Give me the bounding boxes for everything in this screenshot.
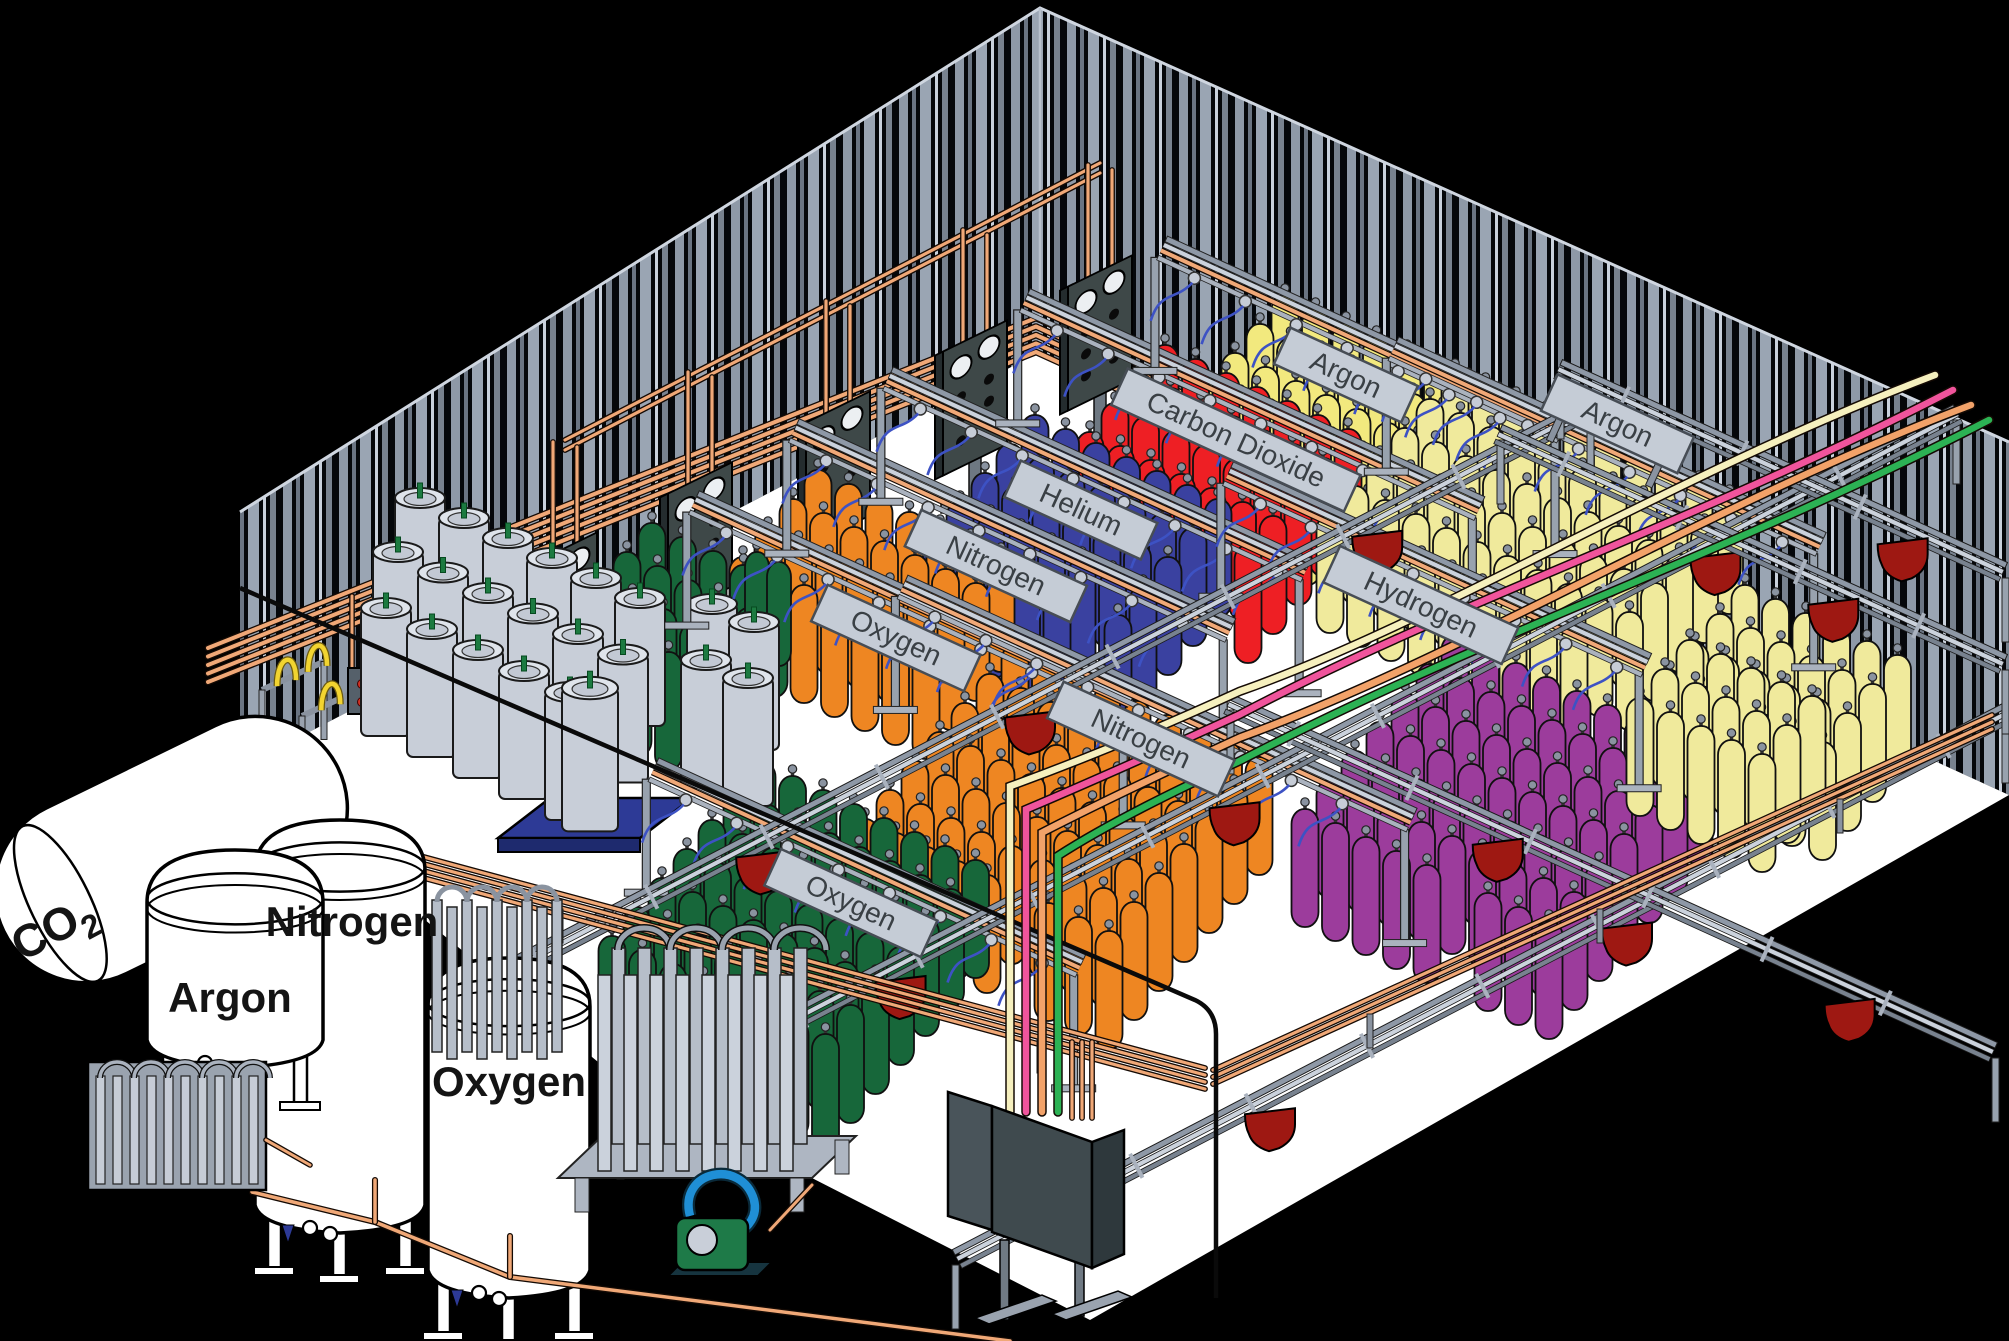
cylinder-valve-icon	[1528, 516, 1536, 524]
cylinder-valve-icon	[1105, 920, 1113, 928]
vaporizer-fin	[768, 948, 781, 1144]
cylinder-valve-icon	[916, 793, 924, 801]
pallet-rack	[88, 1062, 270, 1190]
rack-cylinder	[130, 1076, 139, 1184]
cylinder-valve-icon	[1777, 631, 1785, 639]
rack-cylinder	[181, 1076, 190, 1184]
cylinder-valve-icon	[1027, 763, 1035, 771]
cylinder-valve-icon	[1381, 754, 1389, 762]
cylinder-valve-icon	[1191, 348, 1199, 356]
cylinder-valve-icon	[1456, 402, 1464, 410]
rack-cylinder	[232, 1076, 241, 1184]
cylinder-valve-icon	[653, 555, 661, 563]
cylinder-valve-icon	[1625, 601, 1633, 609]
conveyor-post	[952, 1265, 959, 1329]
dewar-valve-icon	[396, 537, 401, 552]
nitrogen-tank-label: Nitrogen	[266, 898, 439, 945]
dewar-valve-icon	[418, 483, 423, 498]
cylinder-valve-icon	[1222, 362, 1230, 370]
cylinder-valve-icon	[819, 779, 827, 787]
vaporizer-fin	[477, 907, 487, 1059]
gas-plant-illustration: Oxygen Nitrogen Helium Carbon Dioxide Ar…	[0, 0, 2009, 1341]
cylinder-valve-icon	[1498, 767, 1506, 775]
rail-foot	[1383, 940, 1427, 947]
vaporizer-fin	[598, 975, 611, 1171]
cylinder-valve-icon	[1301, 798, 1309, 806]
vaporizer-fin	[612, 948, 625, 1144]
dewar-valve-icon	[746, 663, 751, 678]
cylinder-valve-icon	[947, 807, 955, 815]
cylinder-valve-icon	[1417, 811, 1425, 819]
pump-motor-icon	[687, 1225, 717, 1255]
dewar-valve-icon	[550, 543, 555, 558]
cylinder-valve-icon	[1584, 766, 1592, 774]
cylinder-valve-icon	[1661, 658, 1669, 666]
cylinder-valve-icon	[1344, 418, 1352, 426]
cylinder-valve-icon	[1523, 473, 1531, 481]
cylinder-valve-icon	[1573, 680, 1581, 688]
rack-cylinder	[113, 1076, 122, 1184]
pipe-post	[1367, 1014, 1373, 1048]
vaporizer-fin	[702, 975, 715, 1171]
dewar-valve-icon	[430, 614, 435, 629]
cylinder-valve-icon	[1088, 791, 1096, 799]
cylinder-valve-icon	[1061, 418, 1069, 426]
cylinder-valve-icon	[1843, 702, 1851, 710]
cylinder-valve-icon	[1231, 342, 1239, 350]
cylinder-valve-icon	[1423, 854, 1431, 862]
cylinder-valve-icon	[855, 836, 863, 844]
cylinder-valve-icon	[1542, 666, 1550, 674]
liquid-dewar	[723, 663, 773, 806]
vaporizer-fin	[728, 975, 741, 1171]
cylinder-valve-icon	[1570, 881, 1578, 889]
cylinder-valve-icon	[1381, 489, 1389, 497]
cylinder-valve-icon	[714, 583, 722, 591]
vaporizer-base-leg	[575, 1178, 589, 1212]
dewar-valve-icon	[506, 523, 511, 538]
cylinder-valve-icon	[971, 849, 979, 857]
cylinder-valve-icon	[1492, 724, 1500, 732]
isometric-scene: Oxygen Nitrogen Helium Carbon Dioxide Ar…	[0, 0, 2009, 1341]
cylinder-valve-icon	[1161, 334, 1169, 342]
gas-cylinder	[1322, 812, 1349, 941]
cylinder-valve-icon	[1147, 449, 1155, 457]
vaporizer-fin	[754, 975, 767, 1171]
tank-foot	[280, 1102, 320, 1110]
cylinder-valve-icon	[1406, 725, 1414, 733]
cylinder-valve-icon	[1462, 710, 1470, 718]
dewar-valve-icon	[576, 619, 581, 634]
rail-post	[1295, 580, 1303, 694]
cylinder-valve-icon	[1503, 810, 1511, 818]
conveyor-post	[2002, 578, 2009, 642]
tank-valve-icon	[323, 1227, 337, 1241]
liquid-dewar	[499, 656, 549, 799]
gas-cylinder	[1292, 798, 1319, 927]
cylinder-valve-icon	[1589, 809, 1597, 817]
cylinder-valve-icon	[936, 721, 944, 729]
cylinder-valve-icon	[977, 821, 985, 829]
cylinder-valve-icon	[1116, 435, 1124, 443]
cylinder-valve-icon	[1058, 777, 1066, 785]
cylinder-valve-icon	[1442, 782, 1450, 790]
cylinder-valve-icon	[1808, 685, 1816, 693]
cylinder-valve-icon	[1487, 681, 1495, 689]
cylinder-valve-icon	[719, 895, 727, 903]
cylinder-valve-icon	[663, 910, 671, 918]
dewar-valve-icon	[462, 503, 467, 518]
dewar-valve-icon	[486, 578, 491, 593]
vaporizer-fin	[492, 900, 502, 1052]
cylinder-valve-icon	[1256, 313, 1264, 321]
cylinder-valve-icon	[1467, 753, 1475, 761]
cylinder-valve-icon	[1578, 723, 1586, 731]
rail-foot	[859, 498, 903, 505]
liquid-dewar	[361, 593, 411, 736]
liquid-dewar	[407, 614, 457, 757]
conveyor-post	[2002, 670, 2009, 734]
cylinder-valve-icon	[1716, 643, 1724, 651]
cylinder-valve-icon	[1528, 781, 1536, 789]
cylinder-valve-icon	[1553, 752, 1561, 760]
cylinder-valve-icon	[1261, 356, 1269, 364]
cylinder-valve-icon	[1442, 517, 1450, 525]
cylinder-valve-icon	[1539, 867, 1547, 875]
cylinder-valve-icon	[1514, 896, 1522, 904]
conveyor-post	[1497, 440, 1504, 504]
cylinder-valve-icon	[880, 530, 888, 538]
cylinder-valve-icon	[683, 838, 691, 846]
cylinder-valve-icon	[1603, 694, 1611, 702]
cylinder-valve-icon	[981, 462, 989, 470]
vaporizer-fin	[780, 975, 793, 1171]
tank-valve-icon	[303, 1221, 317, 1235]
cylinder-valve-icon	[1448, 825, 1456, 833]
cylinder-valve-icon	[1523, 738, 1531, 746]
cylinder-valve-icon	[885, 850, 893, 858]
cylinder-valve-icon	[739, 546, 747, 554]
vaporizer-fin	[537, 907, 547, 1059]
cylinder-valve-icon	[1086, 421, 1094, 429]
cylinder-valve-icon	[946, 878, 954, 886]
gas-cylinder	[1171, 833, 1198, 962]
cylinder-valve-icon	[1559, 795, 1567, 803]
cylinder-valve-icon	[997, 749, 1005, 757]
dewar-valve-icon	[621, 640, 626, 655]
cylinder-valve-icon	[1517, 695, 1525, 703]
corner-panel-side	[1092, 1130, 1124, 1268]
gas-cylinder	[812, 1023, 839, 1152]
rail-foot	[665, 622, 709, 629]
tank-foot	[254, 1267, 294, 1275]
dewar-valve-icon	[594, 563, 599, 578]
cylinder-valve-icon	[1155, 862, 1163, 870]
cylinder-valve-icon	[824, 822, 832, 830]
vaporizer-fin	[522, 900, 532, 1052]
cylinder-valve-icon	[880, 807, 888, 815]
conveyor-post	[1953, 420, 1960, 484]
cylinder-valve-icon	[844, 473, 852, 481]
cylinder-valve-icon	[1426, 388, 1434, 396]
cylinder-valve-icon	[1783, 714, 1791, 722]
rack-cylinder	[249, 1076, 258, 1184]
vaporizer-fin	[664, 948, 677, 1144]
cylinder-valve-icon	[1122, 446, 1130, 454]
gas-cylinder	[1121, 891, 1148, 1020]
cylinder-valve-icon	[788, 765, 796, 773]
cylinder-valve-icon	[1503, 545, 1511, 553]
cylinder-valve-icon	[1437, 739, 1445, 747]
cylinder-valve-icon	[1777, 671, 1785, 679]
cylinder-valve-icon	[1283, 390, 1291, 398]
dewar-valve-icon	[522, 656, 527, 671]
gas-cylinder	[1146, 862, 1173, 991]
cylinder-valve-icon	[819, 502, 827, 510]
cylinder-valve-icon	[1031, 404, 1039, 412]
oxygen-tank-label: Oxygen	[432, 1058, 586, 1105]
cylinder-valve-icon	[623, 541, 631, 549]
cylinder-valve-icon	[821, 1023, 829, 1031]
cylinder-valve-icon	[910, 821, 918, 829]
cylinder-valve-icon	[1208, 477, 1216, 485]
vaporizer-fin	[794, 948, 807, 1144]
rail-foot	[996, 420, 1040, 427]
vaporizer-fin	[676, 975, 689, 1171]
dewar-valve-icon	[752, 607, 757, 622]
tank-body	[147, 850, 323, 1068]
cylinder-valve-icon	[1595, 852, 1603, 860]
cylinder-valve-icon	[941, 835, 949, 843]
cylinder-valve-icon	[1153, 460, 1161, 468]
dewar-valve-icon	[384, 593, 389, 608]
cylinder-valve-icon	[1609, 737, 1617, 745]
cylinder-valve-icon	[916, 864, 924, 872]
cylinder-valve-icon	[1746, 617, 1754, 625]
pipe-post	[1837, 799, 1843, 833]
rail-post	[1401, 830, 1409, 944]
tank-foot	[423, 1332, 463, 1340]
cylinder-valve-icon	[1747, 657, 1755, 665]
cylinder-valve-icon	[1666, 701, 1674, 709]
cylinder-valve-icon	[1252, 376, 1260, 384]
pallet-edge	[498, 838, 640, 852]
conveyor-post	[1992, 1058, 1999, 1122]
dewar-valve-icon	[476, 635, 481, 650]
rail-foot	[1364, 468, 1408, 475]
rail-post	[1635, 675, 1643, 789]
rack-cylinder	[147, 1076, 156, 1184]
tank-foot	[319, 1275, 359, 1283]
dewar-valve-icon	[588, 671, 593, 688]
vaporizer-fin	[742, 948, 755, 1144]
cylinder-valve-icon	[905, 501, 913, 509]
vaporizer-fin	[716, 948, 729, 1144]
cylinder-valve-icon	[1099, 877, 1107, 885]
cylinder-valve-icon	[800, 574, 808, 582]
vaporizer-fin	[447, 907, 457, 1059]
gas-cylinder	[1688, 715, 1715, 844]
cylinder-valve-icon	[1130, 891, 1138, 899]
cylinder-valve-icon	[1180, 833, 1188, 841]
cylinder-valve-icon	[1771, 588, 1779, 596]
vaporizer-fin	[507, 907, 517, 1059]
cylinder-valve-icon	[841, 951, 849, 959]
cylinder-valve-icon	[941, 764, 949, 772]
tank-foot	[385, 1267, 425, 1275]
cylinder-valve-icon	[1727, 729, 1735, 737]
cylinder-valve-icon	[972, 778, 980, 786]
rail-foot	[873, 706, 917, 713]
cylinder-valve-icon	[1177, 463, 1185, 471]
cylinder-valve-icon	[1092, 432, 1100, 440]
cylinder-valve-icon	[1559, 530, 1567, 538]
cylinder-valve-icon	[749, 909, 757, 917]
rail-foot	[1792, 664, 1836, 671]
cylinder-valve-icon	[1473, 796, 1481, 804]
liquid-dewar	[562, 671, 618, 831]
gas-cylinder	[1353, 826, 1380, 955]
cylinder-valve-icon	[1758, 743, 1766, 751]
cylinder-valve-icon	[1686, 629, 1694, 637]
cylinder-valve-icon	[961, 692, 969, 700]
vaporizer-fin	[552, 900, 562, 1052]
liquid-dewar	[453, 635, 503, 778]
tank-valve-icon	[492, 1292, 506, 1306]
gas-cylinder	[837, 994, 864, 1123]
rail-foot	[1617, 785, 1661, 792]
vaporizer-fin	[638, 948, 651, 1144]
cylinder-valve-icon	[1564, 838, 1572, 846]
rack-cylinder	[164, 1076, 173, 1184]
cylinder-valve-icon	[1697, 715, 1705, 723]
cylinder-valve-icon	[1548, 709, 1556, 717]
cylinder-valve-icon	[1752, 700, 1760, 708]
argon-tank-label: Argon	[168, 974, 292, 1021]
cylinder-valve-icon	[1620, 823, 1628, 831]
cylinder-valve-icon	[1183, 474, 1191, 482]
rail-foot	[765, 550, 809, 557]
cylinder-valve-icon	[1074, 906, 1082, 914]
cylinder-valve-icon	[986, 663, 994, 671]
dewar-valve-icon	[638, 583, 643, 598]
cylinder-valve-icon	[1863, 630, 1871, 638]
tank-valve-icon	[472, 1286, 486, 1300]
tank-foot	[554, 1332, 594, 1340]
gas-cylinder	[1657, 701, 1684, 830]
vaporizer-fin	[624, 975, 637, 1171]
cylinder-valve-icon	[1362, 826, 1370, 834]
cylinder-valve-icon	[1716, 603, 1724, 611]
rack-cylinder	[96, 1076, 105, 1184]
vaporizer-fin	[462, 900, 472, 1052]
pipe-post	[1597, 909, 1603, 943]
cylinder-valve-icon	[1868, 673, 1876, 681]
cylinder-valve-icon	[1313, 404, 1321, 412]
cylinder-valve-icon	[648, 512, 656, 520]
vaporizer-base-leg	[835, 1140, 849, 1174]
cylinder-valve-icon	[1564, 573, 1572, 581]
cylinder-valve-icon	[658, 867, 666, 875]
cylinder-valve-icon	[1392, 840, 1400, 848]
corner-panel-wing	[948, 1092, 992, 1230]
cylinder-valve-icon	[1722, 686, 1730, 694]
gas-cylinder	[1439, 825, 1466, 954]
dewar-valve-icon	[531, 599, 536, 614]
cylinder-valve-icon	[1691, 672, 1699, 680]
gas-cylinder	[1096, 920, 1123, 1049]
cylinder-valve-icon	[850, 516, 858, 524]
cylinder-valve-icon	[1893, 644, 1901, 652]
cylinder-valve-icon	[1484, 882, 1492, 890]
gas-cylinder	[1414, 854, 1441, 983]
cylinder-valve-icon	[1164, 546, 1172, 554]
dewar-valve-icon	[710, 589, 715, 604]
rack-cylinder	[215, 1076, 224, 1184]
dewar-valve-icon	[441, 558, 446, 573]
vaporizer-small	[432, 887, 562, 1059]
rack-cylinder	[198, 1076, 207, 1184]
vaporizer-fin	[650, 975, 663, 1171]
dewar-valve-icon	[704, 645, 709, 660]
cylinder-valve-icon	[1838, 659, 1846, 667]
vaporizer-fin	[690, 948, 703, 1144]
